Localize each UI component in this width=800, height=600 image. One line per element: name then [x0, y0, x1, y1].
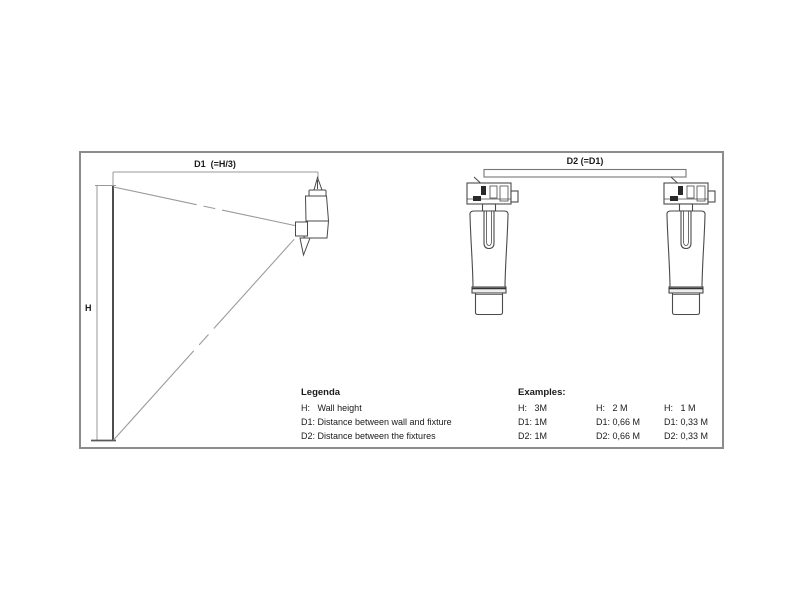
d1-dimension-line: [113, 172, 318, 185]
legend-item-d1: D1: Distance between wall and fixture: [301, 418, 452, 428]
legend-item-h: H: Wall height: [301, 404, 362, 414]
example-col2-d2: D2: 0,66 M: [596, 432, 640, 442]
beam-upper: [114, 187, 298, 226]
d2-dimension-track-bar: [484, 170, 686, 178]
example-col2-d1: D1: 0,66 M: [596, 418, 640, 428]
track-spotlight-left: [467, 177, 518, 315]
d2-dimension-label: D2 (=D1): [525, 157, 645, 167]
example-col1-d2: D2: 1M: [518, 432, 547, 442]
example-col3-d1: D1: 0,33 M: [664, 418, 708, 428]
diagram-artwork: [0, 0, 800, 600]
example-col3-h: H: 1 M: [664, 404, 696, 414]
examples-title: Examples:: [518, 388, 566, 398]
wall-washer-spotlight: [296, 178, 329, 256]
example-col1-h: H: 3M: [518, 404, 547, 414]
legend-title: Legenda: [301, 388, 340, 398]
beam-lower: [114, 235, 299, 440]
example-col3-d2: D2: 0,33 M: [664, 432, 708, 442]
page: D1 (=H/3) H D2 (=D1) Legenda H: Wall hei…: [0, 0, 800, 600]
legend-item-d2: D2: Distance between the fixtures: [301, 432, 436, 442]
light-beam-lines: [114, 187, 299, 440]
h-dimension-label: H: [85, 304, 92, 314]
track-spotlight-right: [664, 177, 715, 315]
wall: [91, 186, 116, 441]
example-col2-h: H: 2 M: [596, 404, 628, 414]
d1-dimension-label: D1 (=H/3): [155, 160, 275, 170]
example-col1-d1: D1: 1M: [518, 418, 547, 428]
